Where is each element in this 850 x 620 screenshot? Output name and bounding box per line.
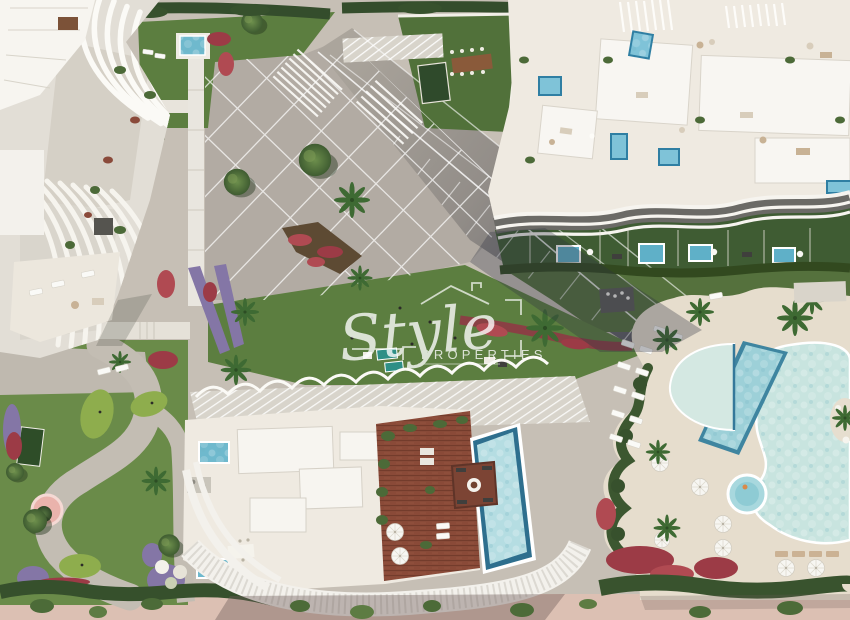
roof-pergola-table <box>58 17 78 30</box>
scene-svg: Style PROPERTIES <box>0 0 850 620</box>
plaza-palm <box>231 298 259 326</box>
west-roof-block <box>0 150 44 235</box>
plaza-palm <box>334 182 370 218</box>
roof-chimney <box>94 218 113 235</box>
pergola-ne <box>794 281 847 303</box>
watermark-subtitle: PROPERTIES <box>421 347 547 362</box>
mini-golf-green-3 <box>59 554 101 578</box>
deck-platform <box>452 462 497 508</box>
watermark-brand: Style <box>336 289 501 376</box>
south-hedge-row <box>600 582 850 590</box>
green-roof-pavilion <box>418 62 450 103</box>
garden-palm <box>142 467 171 496</box>
plaza-palm <box>221 355 252 386</box>
aerial-render-canvas: Style PROPERTIES <box>0 0 850 620</box>
